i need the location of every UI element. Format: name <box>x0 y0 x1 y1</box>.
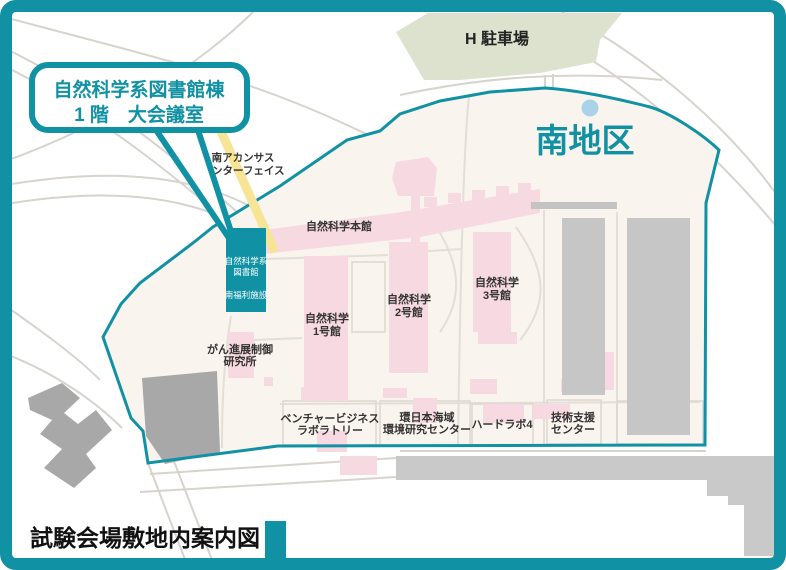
label-bldg1-l1: 自然科学 <box>305 311 349 325</box>
label-kannihonkai-l1: 環日本海域 <box>400 410 455 424</box>
district-label: 南地区 <box>536 122 635 159</box>
label-bldg3-l1: 自然科学 <box>475 275 519 289</box>
title-divider-bar <box>265 521 286 561</box>
building-2gokan-top <box>392 157 437 196</box>
label-venture-l1: ベンチャービジネス <box>281 411 380 425</box>
label-bldg3-l2: 3号館 <box>483 288 511 302</box>
road-segment-gray <box>531 202 617 209</box>
label-hardlab: ハードラボ4 <box>471 417 533 431</box>
label-cancer-l1: がん進展制御 <box>207 342 273 356</box>
pond <box>582 100 599 117</box>
parking-label: H 駐車場 <box>465 29 529 48</box>
label-kannihonkai-l2: 環境研究センター <box>383 422 471 436</box>
library-label-line2: 図書館 <box>233 267 259 277</box>
campus-map: H 駐車場 <box>0 0 786 570</box>
label-gijutsu-l2: センター <box>551 423 595 436</box>
label-bldg2-l2: 2号館 <box>395 305 423 319</box>
callout-line2: 1 階 大会議室 <box>74 103 204 126</box>
label-honkan: 自然科学本館 <box>306 219 372 233</box>
library-label-line1: 自然科学系 <box>225 256 268 266</box>
label-bldg1-l2: 1号館 <box>313 324 341 338</box>
library-label-line3: 南福利施設 <box>225 290 268 300</box>
label-venture-l2: ラボラトリー <box>297 423 363 437</box>
map-title: 試験会場敷地内案内図 <box>30 525 260 551</box>
label-gijutsu-l1: 技術支援 <box>551 410 596 424</box>
label-bldg2-l1: 自然科学 <box>387 292 431 306</box>
callout-line1: 自然科学系図書館棟 <box>53 78 225 101</box>
map-canvas: H 駐車場 <box>0 0 786 570</box>
label-cancer-l2: 研究所 <box>224 354 257 368</box>
road-label-line1: 南アカンサス <box>212 151 275 164</box>
